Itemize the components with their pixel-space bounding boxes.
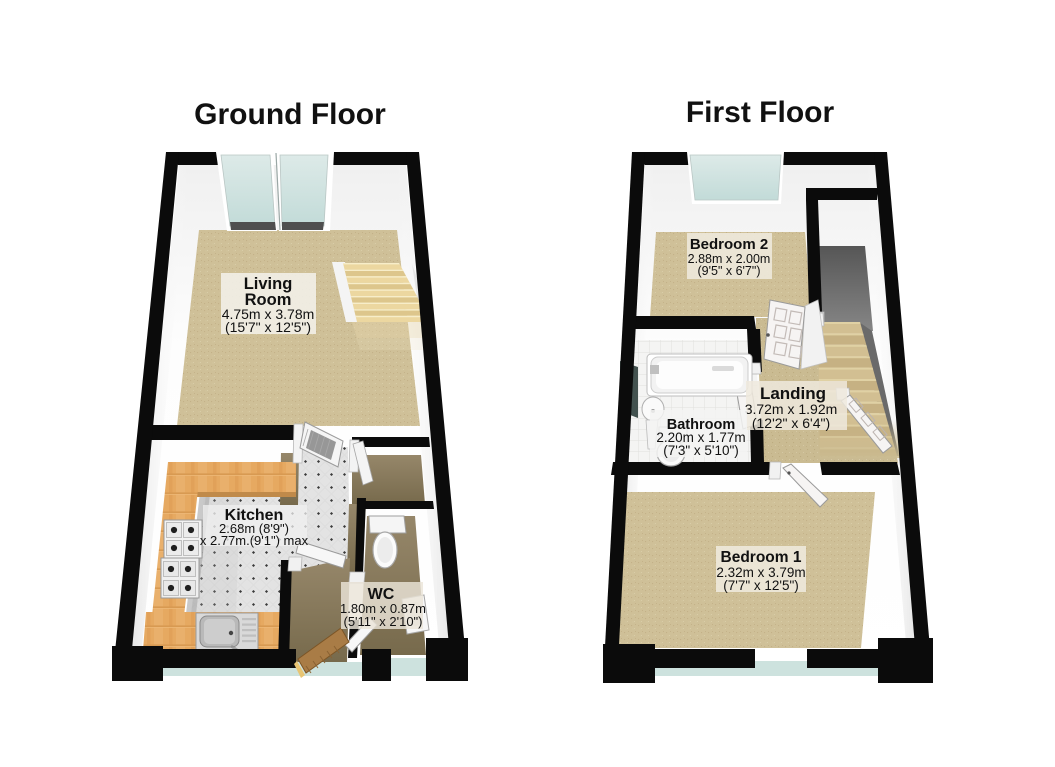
- svg-text:(15'7" x 12'5"): (15'7" x 12'5"): [225, 319, 311, 335]
- svg-text:First Floor: First Floor: [686, 96, 835, 129]
- svg-text:(12'2" x 6'4"): (12'2" x 6'4"): [752, 415, 830, 431]
- svg-text:(7'7" x 12'5"): (7'7" x 12'5"): [723, 578, 799, 593]
- svg-text:(9'5" x 6'7"): (9'5" x 6'7"): [698, 264, 761, 278]
- svg-text:x 2.77m.(9'1") max: x 2.77m.(9'1") max: [200, 533, 309, 548]
- svg-text:(5'11" x 2'10"): (5'11" x 2'10"): [344, 614, 423, 629]
- svg-text:Ground Floor: Ground Floor: [194, 98, 386, 131]
- svg-text:Bedroom 2: Bedroom 2: [690, 236, 768, 253]
- svg-text:(7'3" x 5'10"): (7'3" x 5'10"): [663, 443, 739, 458]
- svg-text:Bedroom 1: Bedroom 1: [721, 549, 802, 566]
